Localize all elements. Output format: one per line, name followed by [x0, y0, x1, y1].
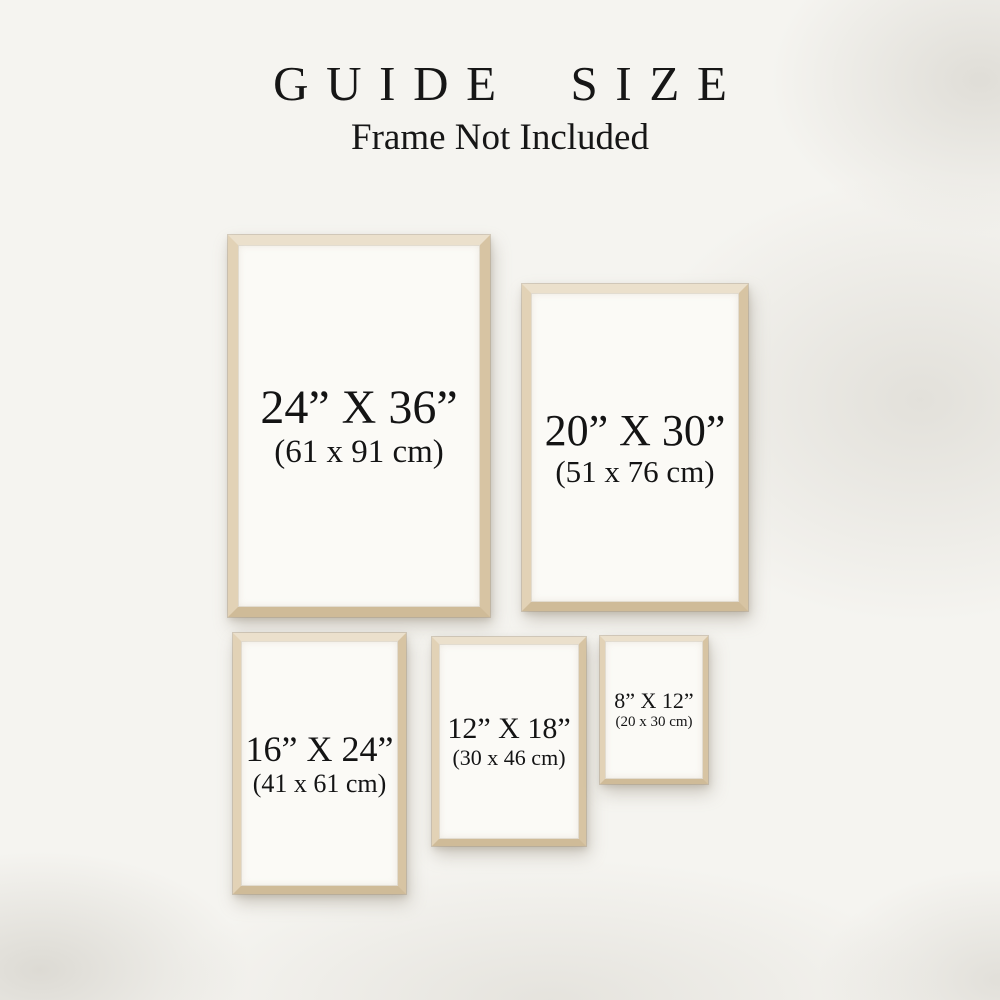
- frame-12x18-size-cm: (30 x 46 cm): [452, 746, 565, 771]
- frame-16x24: 16” X 24” (41 x 61 cm): [233, 633, 406, 894]
- frame-16x24-size-inches: 16” X 24”: [246, 729, 394, 769]
- frame-8x12-size-cm: (20 x 30 cm): [615, 714, 692, 731]
- frame-12x18-paper: 12” X 18” (30 x 46 cm): [439, 644, 579, 839]
- frame-8x12-paper: 8” X 12” (20 x 30 cm): [605, 641, 703, 779]
- frame-8x12-size-inches: 8” X 12”: [614, 689, 693, 714]
- frame-24x36-size-cm: (61 x 91 cm): [274, 434, 444, 471]
- frame-20x30-size-cm: (51 x 76 cm): [555, 455, 714, 490]
- frame-20x30-size-inches: 20” X 30”: [545, 406, 726, 455]
- frame-20x30: 20” X 30” (51 x 76 cm): [522, 284, 748, 611]
- frame-12x18-size-inches: 12” X 18”: [447, 712, 570, 746]
- frame-24x36: 24” X 36” (61 x 91 cm): [228, 235, 490, 617]
- frame-24x36-size-inches: 24” X 36”: [260, 381, 457, 435]
- frame-16x24-paper: 16” X 24” (41 x 61 cm): [241, 641, 398, 886]
- frame-24x36-paper: 24” X 36” (61 x 91 cm): [238, 245, 480, 607]
- page-subtitle: Frame Not Included: [0, 118, 1000, 159]
- size-guide-canvas: GUIDE SIZE Frame Not Included 24” X 36” …: [0, 0, 1000, 1000]
- frame-16x24-size-cm: (41 x 61 cm): [253, 769, 387, 798]
- header: GUIDE SIZE Frame Not Included: [0, 56, 1000, 159]
- frame-12x18: 12” X 18” (30 x 46 cm): [432, 637, 586, 846]
- frame-8x12: 8” X 12” (20 x 30 cm): [600, 636, 708, 784]
- page-title: GUIDE SIZE: [18, 56, 1000, 112]
- frame-20x30-paper: 20” X 30” (51 x 76 cm): [531, 293, 739, 602]
